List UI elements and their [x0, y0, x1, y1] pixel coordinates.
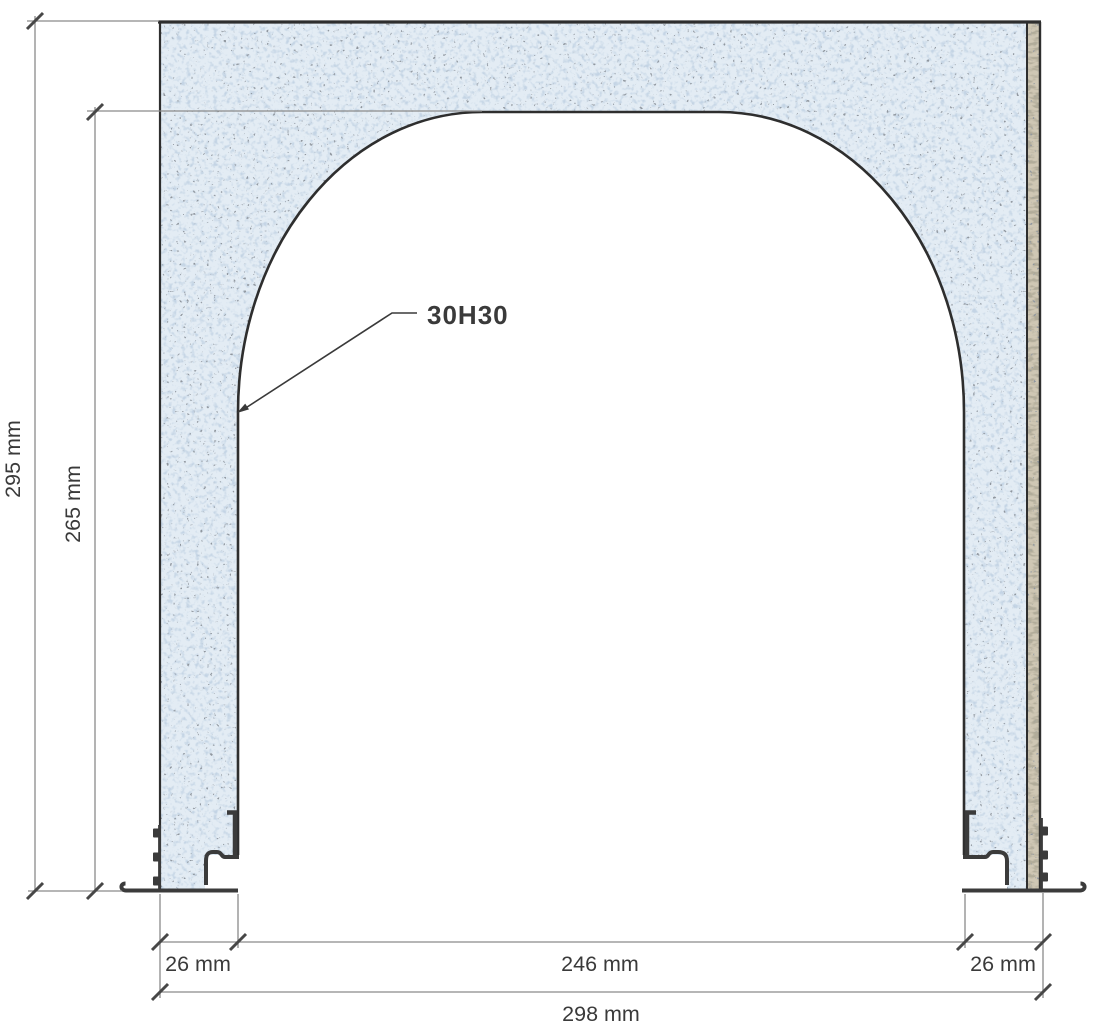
technical-drawing: 295 mm 265 mm 26 mm 246 mm 26 mm 298 mm …	[0, 0, 1101, 1032]
leader-line	[237, 313, 417, 413]
dimension-label-opening-width: 246 mm	[561, 952, 639, 976]
drawing-canvas: 295 mm 265 mm 26 mm 246 mm 26 mm 298 mm …	[0, 0, 1101, 1032]
dimension-label-height-opening: 265 mm	[61, 465, 85, 543]
dimension-label-total-width: 298 mm	[562, 1002, 640, 1026]
arch-wall	[160, 22, 1027, 890]
dimension-label-height-total: 295 mm	[1, 420, 25, 498]
arch-opening-outline	[238, 112, 964, 890]
wall-plaster-strip	[1027, 22, 1040, 890]
dimension-label-leg-left: 26 mm	[165, 952, 231, 976]
left-foot-notch	[205, 855, 240, 890]
right-foot-notch	[963, 855, 1008, 890]
profile-annotation: 30H30	[427, 300, 509, 330]
dimension-label-leg-right: 26 mm	[970, 952, 1036, 976]
